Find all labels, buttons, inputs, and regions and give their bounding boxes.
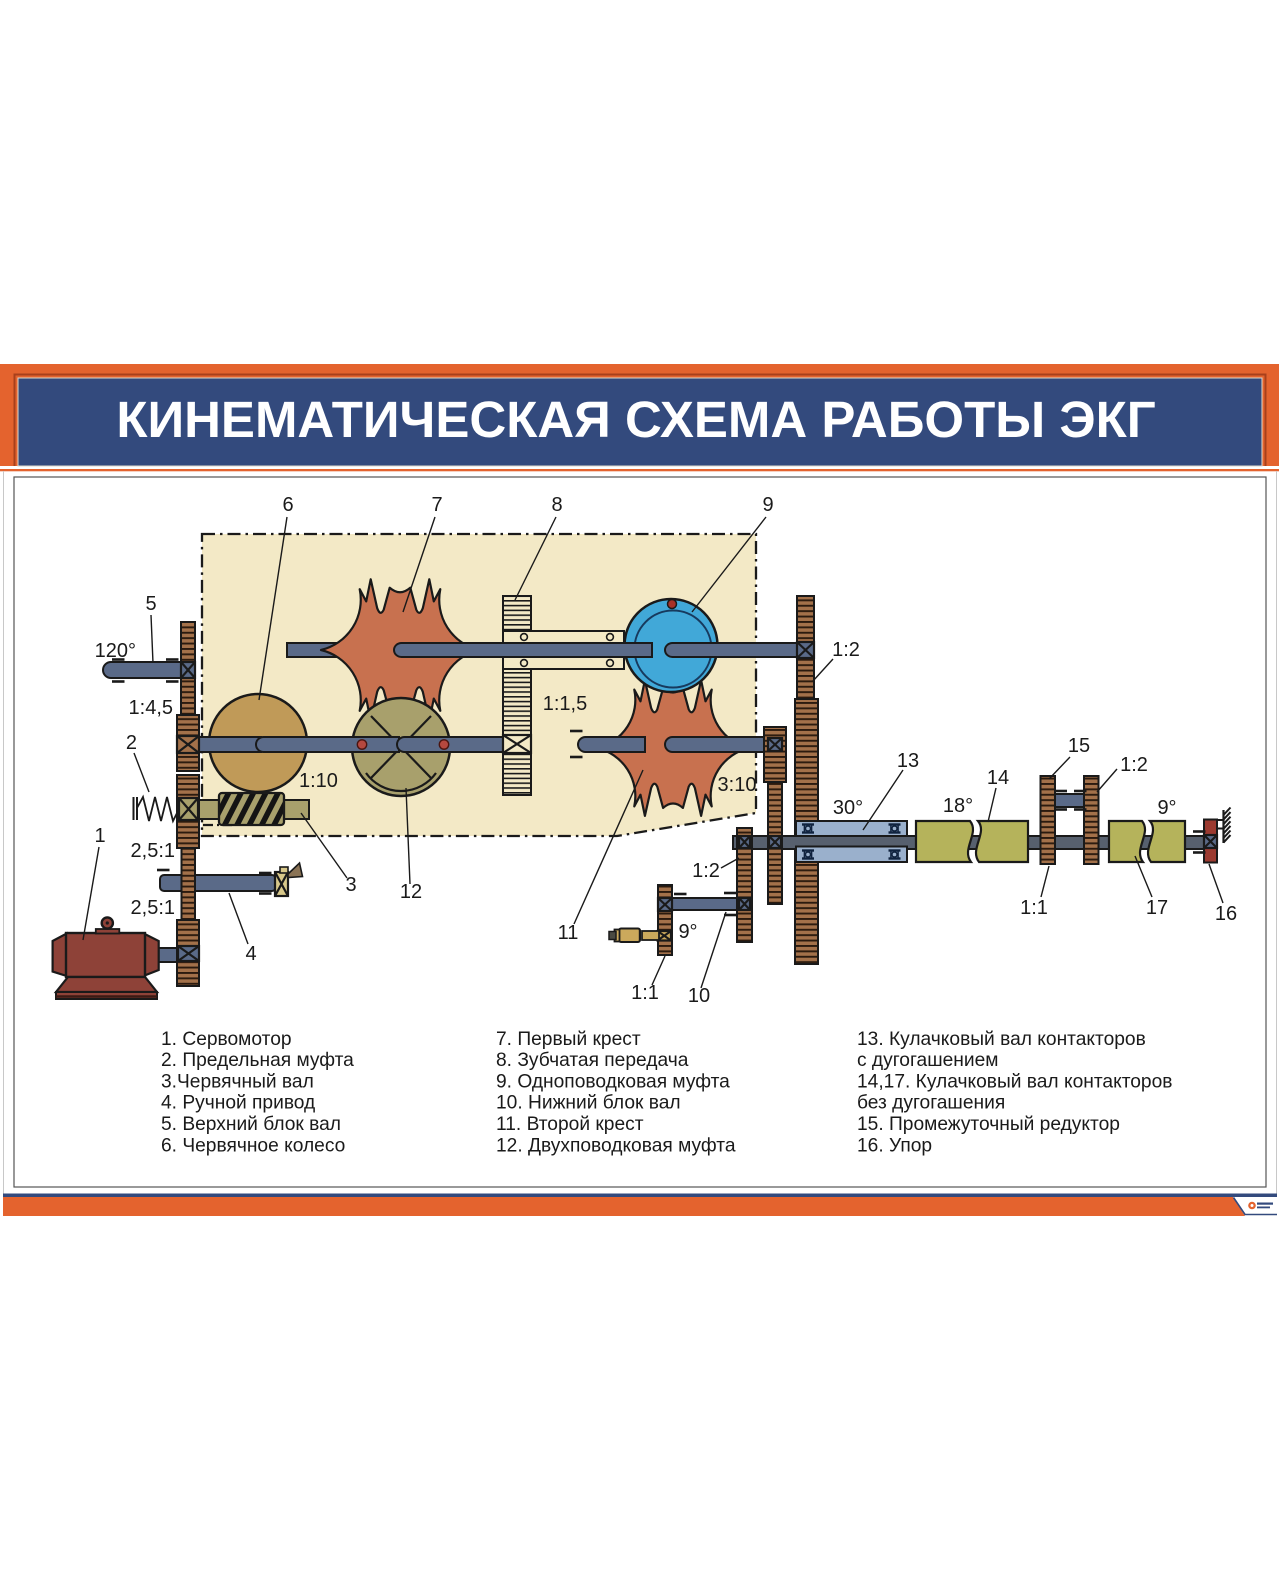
svg-text:13. Кулачковый вал контакторов: 13. Кулачковый вал контакторов — [857, 1029, 1146, 1050]
svg-text:7: 7 — [431, 494, 442, 516]
svg-text:7. Первый крест: 7. Первый крест — [496, 1029, 641, 1050]
svg-text:16. Упор: 16. Упор — [857, 1135, 932, 1156]
svg-text:18°: 18° — [943, 795, 973, 817]
svg-text:5: 5 — [145, 593, 156, 615]
svg-text:15: 15 — [1068, 735, 1090, 757]
svg-text:30°: 30° — [833, 797, 863, 819]
svg-text:9°: 9° — [678, 921, 697, 943]
svg-text:с дугогашением: с дугогашением — [857, 1050, 998, 1071]
svg-text:1:4,5: 1:4,5 — [129, 697, 173, 719]
svg-text:9°: 9° — [1157, 797, 1176, 819]
svg-text:11: 11 — [558, 922, 579, 944]
svg-text:17: 17 — [1146, 897, 1168, 919]
svg-text:10. Нижний блок вал: 10. Нижний блок вал — [496, 1093, 681, 1114]
svg-text:12: 12 — [400, 881, 422, 903]
svg-text:3: 3 — [345, 874, 356, 896]
svg-text:4: 4 — [245, 943, 256, 965]
svg-text:1:2: 1:2 — [1120, 754, 1148, 776]
svg-text:2,5:1: 2,5:1 — [131, 840, 175, 862]
svg-text:2. Предельная муфта: 2. Предельная муфта — [161, 1050, 354, 1071]
svg-text:1:2: 1:2 — [832, 639, 860, 661]
svg-text:12. Двухповодковая муфта: 12. Двухповодковая муфта — [496, 1135, 736, 1156]
svg-text:4. Ручной привод: 4. Ручной привод — [161, 1093, 315, 1114]
svg-text:9: 9 — [762, 494, 773, 516]
svg-text:1:2: 1:2 — [692, 860, 720, 882]
svg-text:8. Зубчатая передача: 8. Зубчатая передача — [496, 1050, 689, 1071]
svg-text:3:10: 3:10 — [718, 774, 757, 796]
svg-text:2: 2 — [126, 732, 137, 754]
svg-text:1:1: 1:1 — [631, 982, 659, 1004]
svg-text:6: 6 — [282, 494, 293, 516]
svg-text:120°: 120° — [95, 640, 136, 662]
svg-text:1:1,5: 1:1,5 — [543, 693, 587, 715]
svg-text:3.Червячный вал: 3.Червячный вал — [161, 1071, 314, 1092]
svg-text:1:10: 1:10 — [299, 770, 338, 792]
svg-text:9. Одноповодковая муфта: 9. Одноповодковая муфта — [496, 1071, 730, 1092]
svg-text:13: 13 — [897, 750, 919, 772]
svg-text:КИНЕМАТИЧЕСКАЯ СХЕМА РАБОТЫ ЭК: КИНЕМАТИЧЕСКАЯ СХЕМА РАБОТЫ ЭКГ — [116, 391, 1155, 448]
svg-text:10: 10 — [688, 985, 710, 1007]
svg-text:8: 8 — [551, 494, 562, 516]
svg-text:без дугогашения: без дугогашения — [857, 1093, 1005, 1114]
svg-text:1:1: 1:1 — [1020, 897, 1048, 919]
svg-text:6. Червячное колесо: 6. Червячное колесо — [161, 1135, 345, 1156]
svg-text:16: 16 — [1215, 903, 1237, 925]
svg-text:2,5:1: 2,5:1 — [131, 897, 175, 919]
svg-text:1: 1 — [94, 825, 105, 847]
svg-text:5. Верхний блок вал: 5. Верхний блок вал — [161, 1114, 341, 1135]
svg-text:1. Сервомотор: 1. Сервомотор — [161, 1029, 292, 1050]
svg-text:15. Промежуточный редуктор: 15. Промежуточный редуктор — [857, 1114, 1120, 1135]
svg-text:11. Второй крест: 11. Второй крест — [496, 1114, 644, 1135]
svg-text:14: 14 — [987, 767, 1009, 789]
svg-text:14,17. Кулачковый вал контакто: 14,17. Кулачковый вал контакторов — [857, 1071, 1172, 1092]
